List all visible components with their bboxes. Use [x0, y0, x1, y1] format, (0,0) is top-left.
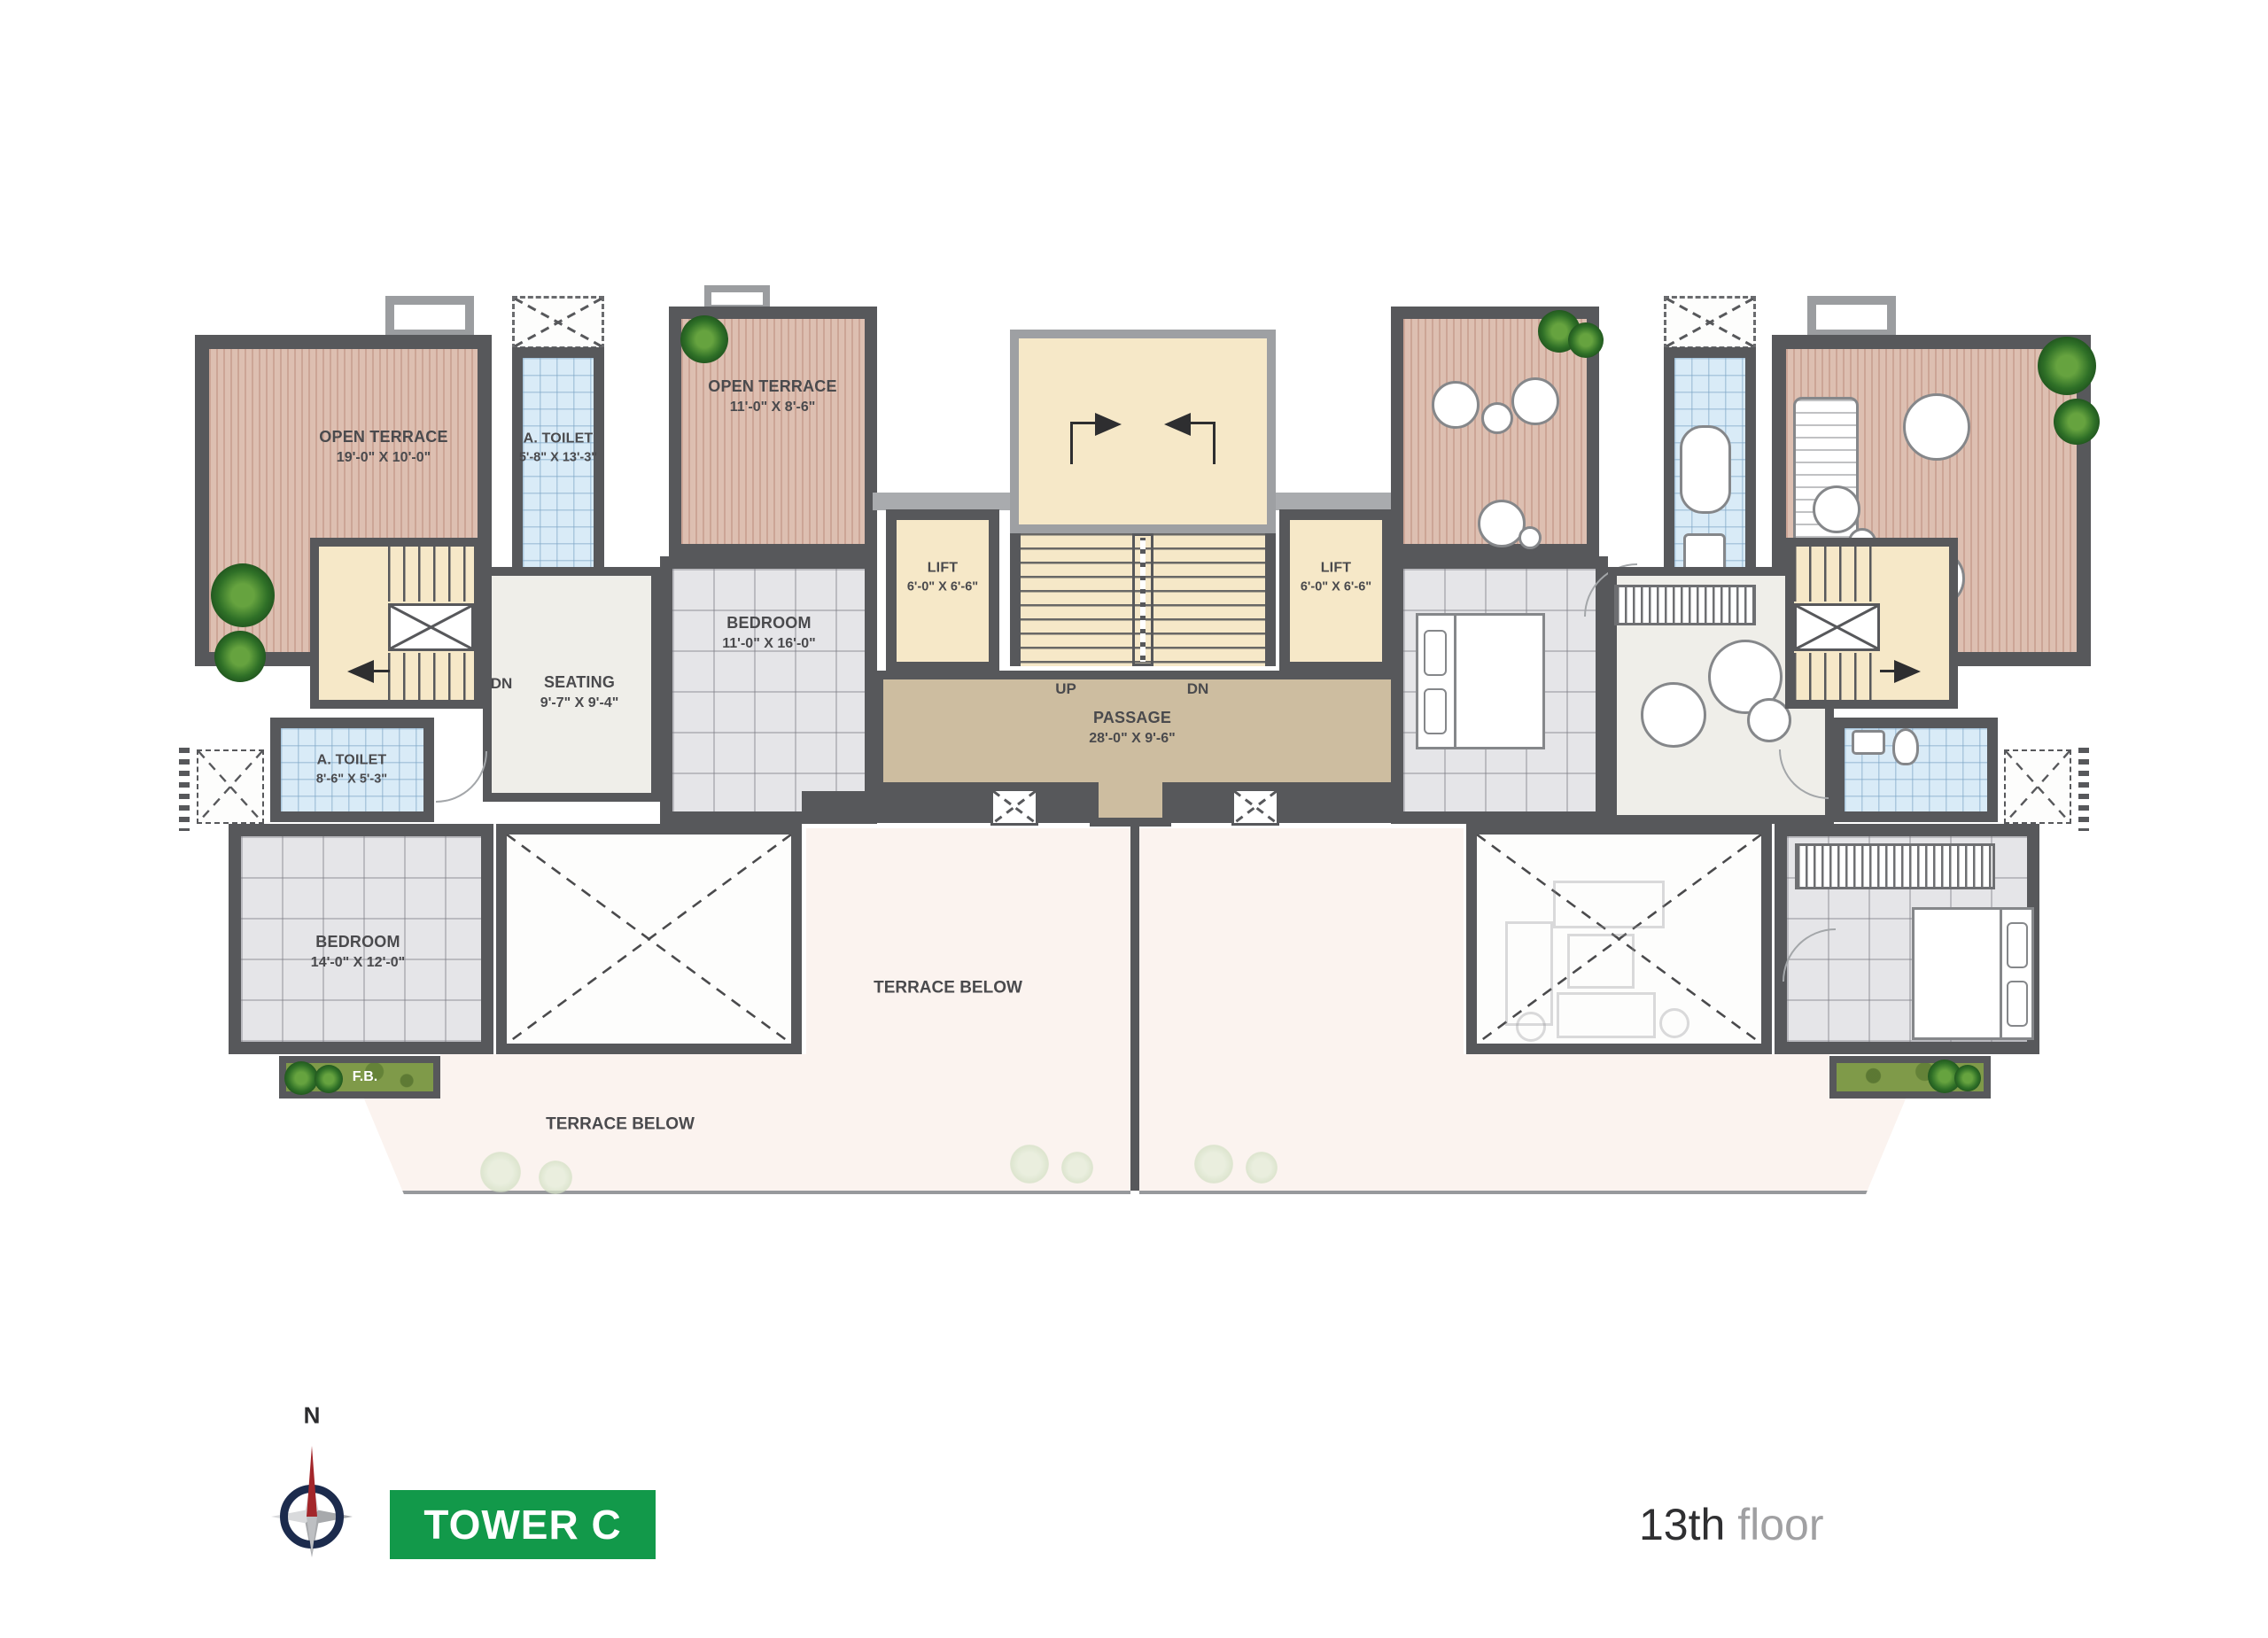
bed-pillow	[1424, 630, 1447, 676]
room-label-bedroom-1: BEDROOM 11'-0" X 16'-0"	[722, 612, 816, 655]
void-cross-icon	[507, 835, 791, 1044]
floor-plan: OPEN TERRACE 19'-0" X 10'-0" A. TOILET 5…	[0, 0, 2268, 1638]
up-arrow-icon	[1095, 413, 1122, 436]
label-up: UP	[1055, 679, 1076, 700]
duct-void-box-right	[1664, 296, 1756, 349]
window-cross	[990, 788, 1038, 826]
window-cross	[1231, 788, 1279, 826]
chair	[1511, 377, 1559, 425]
bed-pillow	[2007, 981, 2028, 1027]
bed-pillow	[1424, 688, 1447, 734]
room-bedroom-1	[660, 556, 877, 824]
terrace-below-center-right	[1139, 828, 1464, 1057]
ghost-sofa	[1557, 992, 1656, 1038]
bed	[1416, 613, 1545, 749]
room-label-open-terrace-2: OPEN TERRACE 11'-0" X 8'-6"	[708, 376, 836, 418]
stair-direction-arrow-icon	[1894, 660, 1921, 683]
cross-icon	[2006, 751, 2070, 822]
stair-treads	[1794, 547, 1880, 602]
stair-treads	[388, 547, 474, 602]
table	[1481, 402, 1513, 434]
wardrobe	[1795, 843, 1995, 889]
plant-icon	[211, 563, 275, 627]
room-label-a-toilet-1: A. TOILET 5'-8" X 13'-3"	[519, 430, 597, 468]
duct-protrusion	[1807, 296, 1896, 338]
label-terrace-below-center: TERRACE BELOW	[874, 977, 1022, 1001]
bed-line	[2000, 910, 2002, 1037]
compass-needle-icon	[307, 1446, 317, 1517]
plant-icon	[1954, 1065, 1981, 1091]
floor-title: 13th floor	[1639, 1499, 1824, 1550]
pouf-chair	[1641, 682, 1706, 748]
stair-direction-arrow-icon	[347, 660, 374, 683]
balcony-void-right	[2004, 749, 2071, 824]
stair-void	[388, 603, 474, 651]
terrace-below-left-strip	[440, 1054, 1130, 1098]
plant-icon	[2054, 399, 2100, 445]
stair-landing	[1010, 330, 1276, 533]
arrow-stem	[1070, 423, 1073, 464]
room-label-lift-left: LIFT 6'-0" X 6'-6"	[907, 559, 978, 597]
arrow-stem	[1191, 422, 1216, 424]
void-right	[1466, 824, 1772, 1054]
plant-icon	[284, 1061, 318, 1095]
void-left	[496, 824, 802, 1054]
stair-treads	[388, 653, 474, 700]
stair-left	[310, 538, 483, 709]
faint-plant-icon	[1061, 1152, 1093, 1184]
faint-plant-icon	[539, 1161, 572, 1194]
table	[1518, 526, 1542, 549]
faint-plant-icon	[1010, 1145, 1049, 1184]
room-label-seating: SEATING 9'-7" X 9'-4"	[540, 672, 619, 714]
label-dn-left: DN	[491, 673, 513, 695]
rail-ticks	[2078, 748, 2089, 831]
washbasin	[1852, 730, 1885, 755]
stair-divider	[1132, 533, 1153, 666]
cross-icon	[515, 299, 602, 346]
chair	[1432, 381, 1480, 429]
bed-pillow	[2007, 922, 2028, 968]
duct-protrusion	[385, 296, 474, 338]
terrace-below-center-left	[806, 828, 1130, 1057]
terrace-below-right-strip	[1139, 1054, 1829, 1098]
terrace-below-left	[363, 1097, 1130, 1194]
passage-bump	[1090, 782, 1171, 827]
room-label-open-terrace-1: OPEN TERRACE 19'-0" X 10'-0"	[319, 426, 447, 469]
room-label-a-toilet-2: A. TOILET 8'-6" X 5'-3"	[316, 751, 387, 789]
faint-plant-icon	[1194, 1145, 1233, 1184]
label-dn: DN	[1187, 679, 1209, 700]
chair	[1903, 393, 1970, 461]
balcony-void-left	[197, 749, 264, 824]
label-flower-bed: F.B.	[353, 1067, 377, 1087]
label-terrace-below-left: TERRACE BELOW	[546, 1114, 695, 1137]
plant-icon	[214, 631, 266, 682]
cross-icon	[391, 606, 471, 648]
faint-plant-icon	[480, 1152, 521, 1192]
plant-icon	[2038, 337, 2096, 395]
ghost-lamp	[1659, 1008, 1689, 1038]
room-label-bedroom-2: BEDROOM 14'-0" X 12'-0"	[311, 931, 405, 974]
bed	[1912, 907, 2034, 1040]
compass-north-label: N	[304, 1402, 321, 1430]
ghost-sofa	[1553, 881, 1665, 928]
room-label-passage: PASSAGE 28'-0" X 9'-6"	[1089, 707, 1176, 749]
room-label-lift-right: LIFT 6'-0" X 6'-6"	[1301, 559, 1371, 597]
cross-icon	[993, 791, 1036, 823]
plant-icon	[680, 315, 728, 363]
cross-icon	[198, 751, 262, 822]
toilet-wc	[1892, 728, 1919, 765]
plant-icon	[1568, 322, 1604, 358]
ghost-lamp	[1516, 1012, 1546, 1042]
bed-line	[1454, 616, 1456, 747]
stair-right	[1785, 538, 1958, 709]
faint-plant-icon	[1246, 1152, 1278, 1184]
duct-void-box-left	[512, 296, 604, 349]
stair-treads	[1794, 653, 1880, 700]
plant-icon	[315, 1065, 343, 1093]
arrow-stem	[374, 670, 390, 672]
bathtub	[1680, 425, 1731, 514]
table	[1813, 485, 1860, 533]
arrow-stem	[1070, 422, 1095, 424]
arrow-stem	[1880, 670, 1896, 672]
cross-icon	[1234, 791, 1277, 823]
ghost-table	[1567, 934, 1635, 989]
cross-icon	[1797, 606, 1877, 648]
door-arc	[436, 751, 487, 803]
rail-ticks	[179, 748, 190, 831]
tower-badge: TOWER C	[390, 1490, 656, 1559]
cross-icon	[1666, 299, 1753, 346]
dn-arrow-icon	[1164, 413, 1191, 436]
wardrobe	[1614, 585, 1756, 625]
stair-void	[1794, 603, 1880, 651]
party-wall	[1130, 825, 1139, 1191]
passage-south-wall	[802, 791, 1094, 823]
arrow-stem	[1213, 423, 1216, 464]
ghost-sofa	[1505, 921, 1553, 1026]
